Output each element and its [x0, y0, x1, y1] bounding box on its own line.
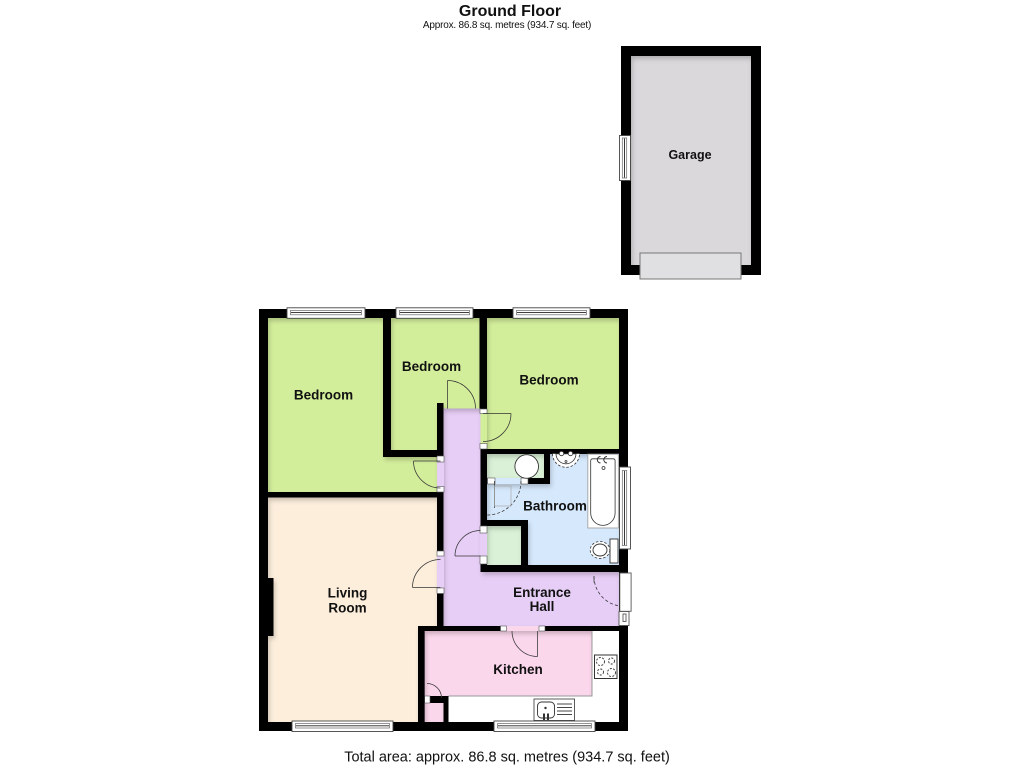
svg-text:Hall: Hall	[530, 599, 555, 614]
svg-text:Living: Living	[328, 586, 368, 601]
svg-text:Bedroom: Bedroom	[294, 388, 353, 403]
svg-text:Total area: approx. 86.8 sq. m: Total area: approx. 86.8 sq. metres (934…	[344, 750, 670, 766]
svg-text:Bedroom: Bedroom	[519, 373, 578, 388]
svg-text:Approx. 86.8 sq. metres (934.7: Approx. 86.8 sq. metres (934.7 sq. feet)	[423, 20, 591, 31]
svg-text:Kitchen: Kitchen	[493, 662, 543, 677]
svg-text:Room: Room	[328, 601, 366, 616]
svg-text:Garage: Garage	[668, 148, 711, 162]
svg-text:Bedroom: Bedroom	[402, 359, 461, 374]
svg-text:Ground Floor: Ground Floor	[459, 3, 561, 20]
svg-text:Bathroom: Bathroom	[523, 499, 587, 514]
svg-text:Entrance: Entrance	[513, 585, 571, 600]
